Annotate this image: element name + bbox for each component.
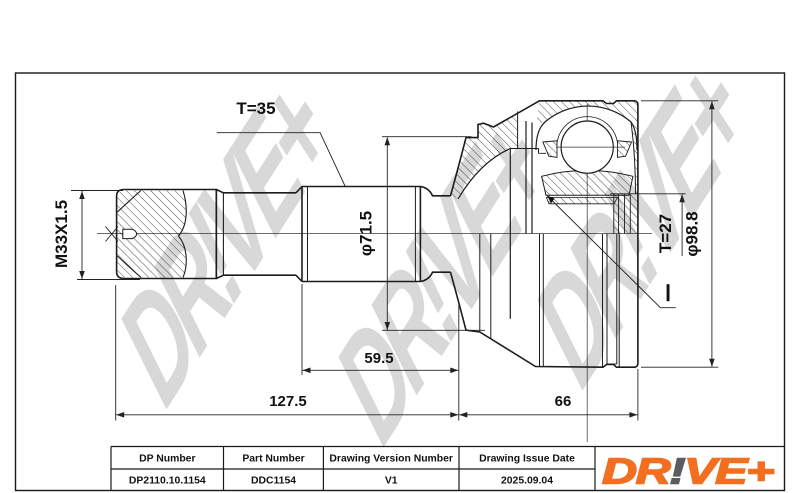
- svg-text:66: 66: [555, 393, 572, 410]
- svg-text:φ71.5: φ71.5: [357, 211, 376, 256]
- svg-text:V1: V1: [385, 476, 398, 487]
- svg-text:Drawing Version Number: Drawing Version Number: [329, 454, 453, 465]
- svg-text:DP2110.10.1154: DP2110.10.1154: [129, 476, 206, 487]
- svg-text:Drawing Issue Date: Drawing Issue Date: [479, 454, 575, 465]
- svg-text:T=27: T=27: [656, 214, 675, 253]
- svg-text:59.5: 59.5: [364, 350, 393, 367]
- svg-text:M33X1.5: M33X1.5: [52, 200, 71, 268]
- svg-text:T=35: T=35: [236, 99, 275, 118]
- svg-text:DR!VE+: DR!VE+: [602, 451, 775, 491]
- svg-text:DDC1154: DDC1154: [251, 476, 296, 487]
- svg-text:Part Number: Part Number: [242, 454, 304, 465]
- svg-text:φ98.8: φ98.8: [683, 211, 702, 256]
- svg-text:127.5: 127.5: [269, 393, 307, 410]
- svg-text:2025.09.04: 2025.09.04: [501, 476, 553, 487]
- svg-text:DP Number: DP Number: [139, 454, 195, 465]
